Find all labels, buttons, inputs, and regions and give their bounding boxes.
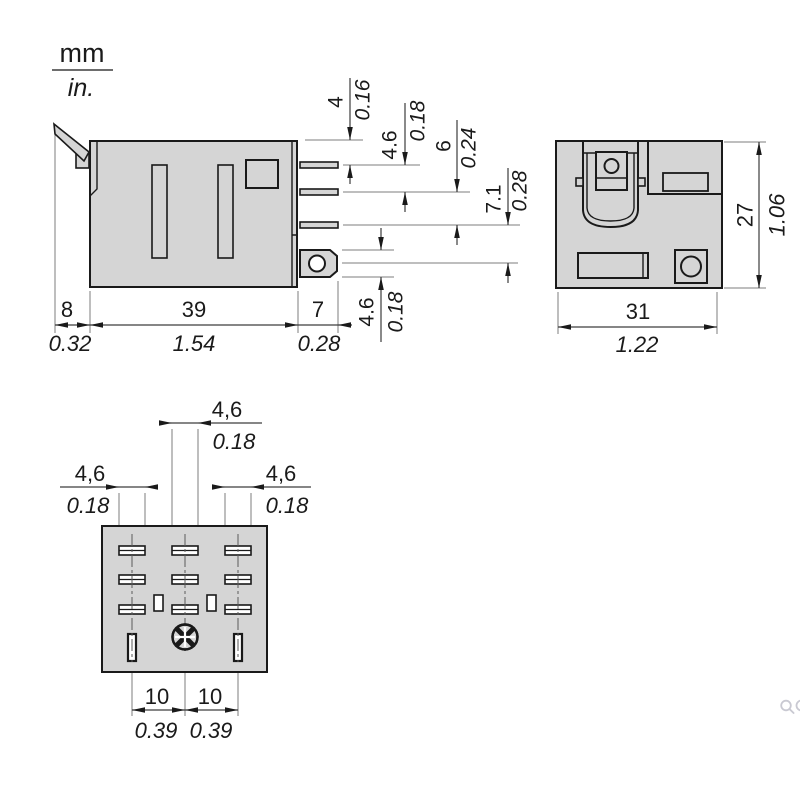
dim-mm: 4.6 xyxy=(356,297,379,326)
dim-mm: 39 xyxy=(182,297,206,322)
dim-blade-center: 4,6 0.18 xyxy=(159,397,262,454)
dim-mm: 7.1 xyxy=(483,184,506,213)
center-screw xyxy=(173,625,198,650)
dim-in: 0.24 xyxy=(458,128,481,169)
dim-blade-left: 4,6 0.18 xyxy=(60,461,158,518)
dim-arrow xyxy=(338,322,351,328)
dim-mm: 4,6 xyxy=(266,461,297,486)
dim-in: 0.32 xyxy=(49,331,92,356)
dim-tab-thickness: 4.6 0.18 xyxy=(356,228,408,342)
dim-in: 0.18 xyxy=(67,493,111,518)
pin-blade-2 xyxy=(300,189,338,195)
dim-pin2-spacing: 4.6 0.18 xyxy=(379,100,430,212)
marking-window xyxy=(246,160,278,188)
dim-arrow xyxy=(225,707,238,713)
dim-arrow xyxy=(198,420,211,426)
unit-legend: mm in. xyxy=(52,38,113,102)
dim-arrow xyxy=(558,324,571,330)
dim-arrow xyxy=(145,484,158,490)
front-view: 27 1.06 31 1.22 xyxy=(556,141,790,357)
dim-in: 0.18 xyxy=(407,100,430,141)
zoom-icon[interactable] xyxy=(781,701,800,714)
dim-arrow xyxy=(77,322,90,328)
dim-arrow xyxy=(704,324,717,330)
dim-mm: 31 xyxy=(626,299,650,324)
dim-arrow xyxy=(212,484,225,490)
dim-arrow xyxy=(90,322,103,328)
dim-arrow xyxy=(159,420,172,426)
dim-in: 0.16 xyxy=(352,79,375,120)
dim-in: 0.18 xyxy=(213,429,257,454)
pin-blade-1 xyxy=(300,162,338,168)
dim-in: 0.18 xyxy=(266,493,310,518)
dim-mm: 6 xyxy=(433,140,456,152)
partial-icon xyxy=(797,701,800,711)
dim-in: 0.39 xyxy=(190,718,233,743)
clip-side-tab-right xyxy=(638,178,645,186)
dim-in: 1.22 xyxy=(616,332,659,357)
dim-arrow xyxy=(402,192,408,205)
dim-mm: 10 xyxy=(198,684,222,709)
dim-arrow xyxy=(106,484,119,490)
dim-mm: 4 xyxy=(325,96,348,108)
dim-arrow xyxy=(55,322,68,328)
dim-arrow xyxy=(172,707,185,713)
dim-arrow xyxy=(347,165,353,178)
dim-arrow xyxy=(505,212,511,225)
dim-mm: 7 xyxy=(312,297,324,322)
bottom-view: 4,6 0.18 4,6 0.18 4,6 0.18 10 0.39 10 xyxy=(60,397,311,743)
dim-blade-right: 4,6 0.18 xyxy=(212,461,311,518)
keying-slot-right xyxy=(207,595,216,611)
dim-arrow xyxy=(378,237,384,250)
mounting-tab xyxy=(300,250,337,277)
dim-mm: 4,6 xyxy=(212,397,243,422)
dim-mm: 8 xyxy=(61,297,73,322)
dim-in: 0.28 xyxy=(509,170,532,211)
dimension-drawing-page: mm in. 4 0.16 xyxy=(0,0,800,800)
side-view: 4 0.16 4.6 0.18 6 0.24 7.1 0.28 xyxy=(49,78,532,356)
keying-slot-left xyxy=(154,595,163,611)
clip-side-tab-left xyxy=(576,178,583,186)
vent-slot-2 xyxy=(218,165,233,258)
dim-mm: 27 xyxy=(733,203,758,227)
dim-mm: 4,6 xyxy=(75,461,106,486)
dim-pin3-spacing: 6 0.24 xyxy=(433,120,481,245)
clip-hole xyxy=(605,159,619,173)
dim-width: 31 1.22 xyxy=(558,299,717,357)
clip-lever xyxy=(54,124,89,161)
dim-arrow xyxy=(251,484,264,490)
dim-arrow xyxy=(505,263,511,276)
dim-arrow xyxy=(756,275,762,288)
retaining-clip xyxy=(54,124,89,168)
dim-in: 0.28 xyxy=(298,331,342,356)
dim-arrow xyxy=(454,179,460,192)
dim-arrow xyxy=(285,322,298,328)
dim-arrow xyxy=(454,225,460,238)
dim-height: 27 1.06 xyxy=(733,142,790,288)
vent-slot-1 xyxy=(152,165,167,258)
dim-mm: 10 xyxy=(145,684,169,709)
dim-in: 0.18 xyxy=(385,291,408,332)
legend-mm-label: mm xyxy=(60,38,105,68)
pin-blade-3 xyxy=(300,222,338,228)
dim-arrow xyxy=(402,152,408,165)
dim-mm: 4.6 xyxy=(379,130,402,159)
dim-bottom-widths: 8 0.32 39 1.54 7 0.28 xyxy=(49,297,352,356)
dim-arrow xyxy=(756,142,762,155)
dim-in: 0.39 xyxy=(135,718,178,743)
dim-arrow xyxy=(185,707,198,713)
tab-hole xyxy=(309,256,325,272)
dim-arrow xyxy=(132,707,145,713)
dim-in: 1.54 xyxy=(173,331,216,356)
dim-arrow xyxy=(378,277,384,290)
legend-in-label: in. xyxy=(68,74,94,102)
magnifier-handle xyxy=(790,709,794,713)
dim-in: 1.06 xyxy=(765,193,790,237)
drawing-canvas: mm in. 4 0.16 xyxy=(0,0,800,800)
dim-arrow xyxy=(347,127,353,140)
